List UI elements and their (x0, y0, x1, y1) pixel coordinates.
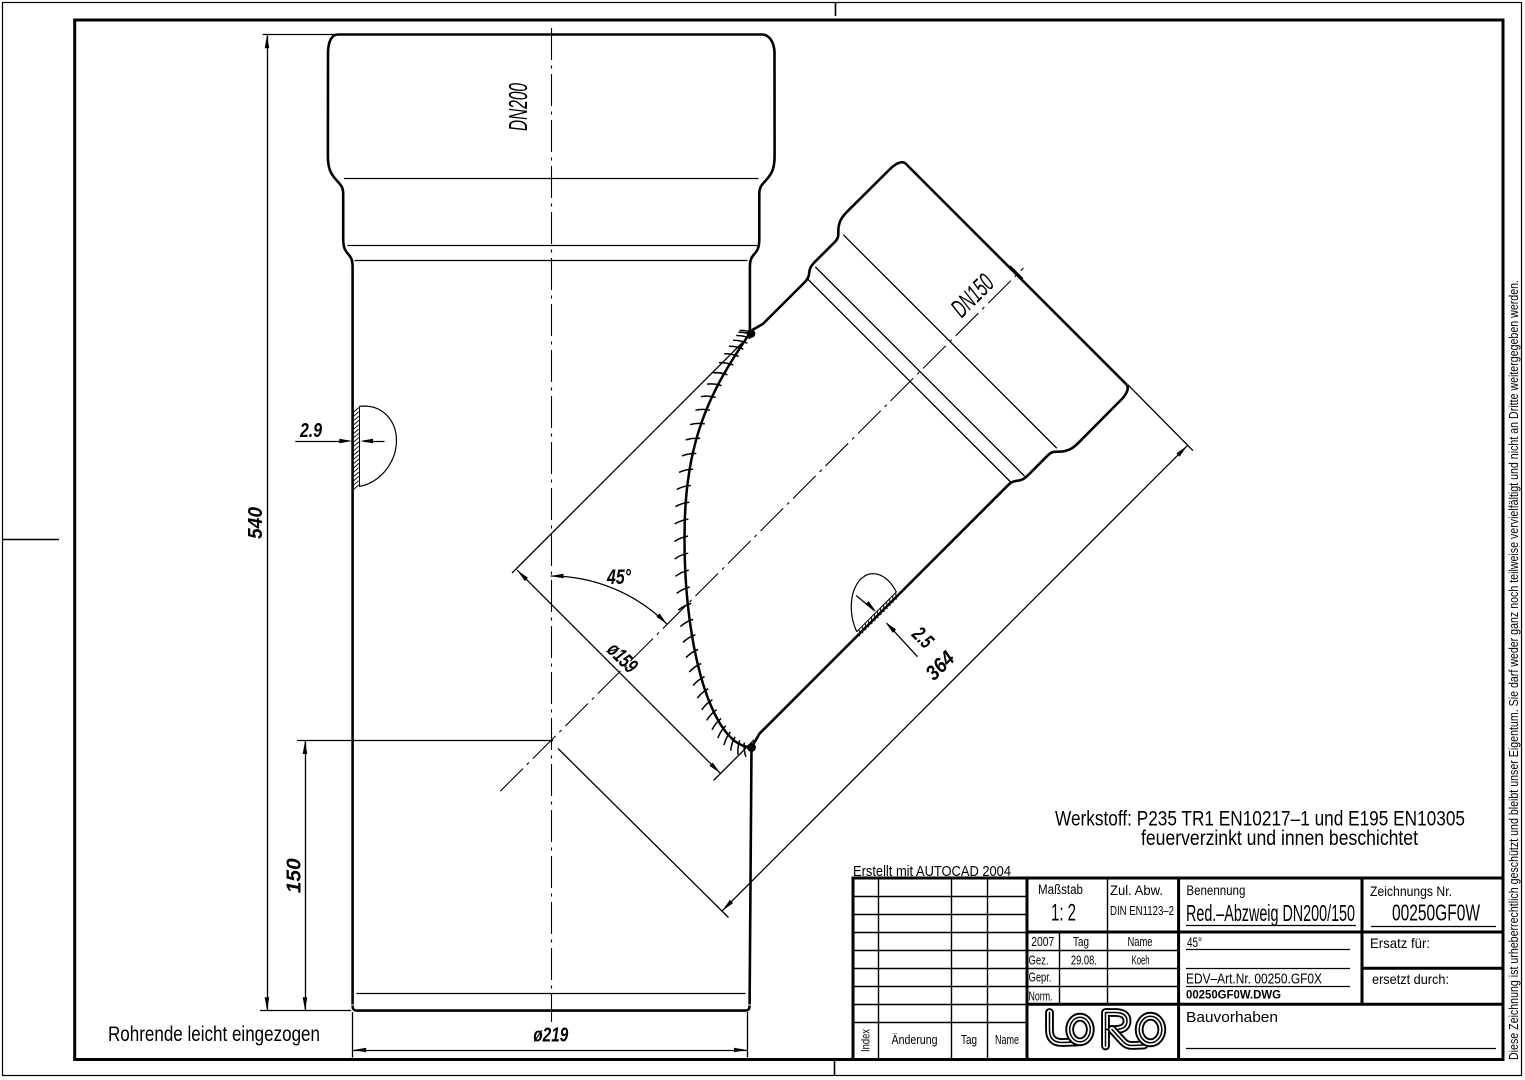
svg-text:Ersatz für:: Ersatz für: (1370, 935, 1430, 951)
svg-text:00250GF0W: 00250GF0W (1392, 900, 1480, 926)
svg-text:45°: 45° (1187, 934, 1202, 950)
svg-text:Red.–Abzweig DN200/150: Red.–Abzweig DN200/150 (1186, 900, 1355, 926)
svg-text:29.08.: 29.08. (1071, 953, 1097, 968)
svg-text:Gepr.: Gepr. (1029, 970, 1052, 985)
svg-text:Zul. Abw.: Zul. Abw. (1110, 883, 1163, 898)
svg-text:Koeh: Koeh (1132, 953, 1150, 968)
svg-text:Index: Index (859, 1029, 873, 1052)
svg-text:2.9: 2.9 (299, 420, 322, 442)
svg-text:Diese Zeichnung ist urheberrec: Diese Zeichnung ist urheberrechtlich ges… (1507, 280, 1521, 1060)
svg-text:2007: 2007 (1031, 934, 1054, 949)
svg-text:ø219: ø219 (533, 1025, 569, 1047)
svg-text:Bauvorhaben: Bauvorhaben (1186, 1010, 1278, 1026)
svg-text:45°: 45° (606, 566, 631, 589)
svg-text:Rohrende leicht eingezogen: Rohrende leicht eingezogen (108, 1023, 320, 1046)
svg-text:feuerverzinkt und innen beschi: feuerverzinkt und innen beschichtet (1141, 827, 1418, 850)
svg-text:540: 540 (245, 507, 267, 539)
svg-text:ersetzt durch:: ersetzt durch: (1372, 971, 1449, 987)
svg-text:Benennung: Benennung (1186, 883, 1245, 898)
svg-text:Gez.: Gez. (1029, 953, 1049, 968)
svg-text:00250GF0W.DWG: 00250GF0W.DWG (1186, 990, 1281, 1002)
svg-text:Name: Name (1128, 934, 1153, 949)
svg-text:Zeichnungs Nr.: Zeichnungs Nr. (1370, 884, 1452, 899)
svg-text:Name: Name (995, 1033, 1019, 1047)
svg-text:Änderung: Änderung (892, 1033, 938, 1047)
svg-text:Tag: Tag (1073, 934, 1089, 949)
svg-text:1: 2: 1: 2 (1051, 900, 1076, 927)
svg-text:DIN EN1123–2: DIN EN1123–2 (1110, 903, 1174, 918)
svg-text:Norm.: Norm. (1029, 989, 1053, 1004)
svg-text:EDV–Art.Nr. 00250.GF0X: EDV–Art.Nr. 00250.GF0X (1186, 972, 1322, 988)
svg-text:DN200: DN200 (503, 83, 533, 131)
svg-text:150: 150 (284, 858, 306, 893)
svg-text:Maßstab: Maßstab (1038, 882, 1083, 897)
svg-text:Tag: Tag (961, 1033, 977, 1047)
